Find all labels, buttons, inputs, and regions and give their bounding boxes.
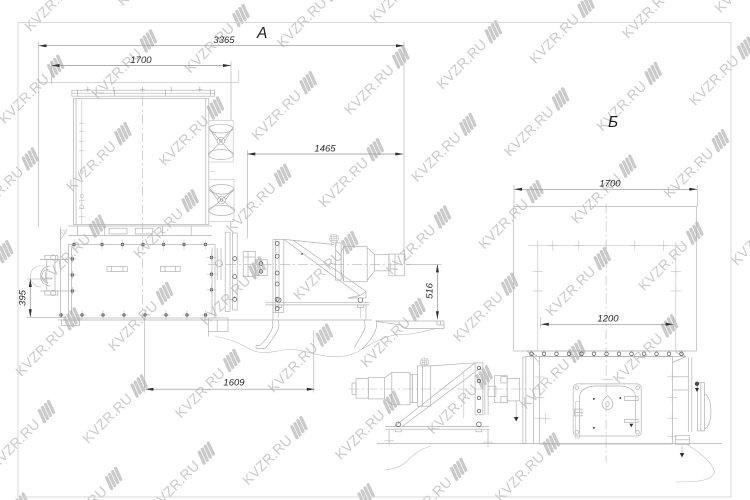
- svg-text:1200: 1200: [597, 313, 619, 324]
- svg-text:А: А: [256, 25, 267, 42]
- svg-text:516: 516: [425, 282, 436, 299]
- svg-text:1700: 1700: [130, 55, 152, 66]
- svg-text:Б: Б: [608, 114, 618, 131]
- svg-text:1465: 1465: [314, 143, 336, 154]
- svg-text:3365: 3365: [213, 35, 235, 46]
- svg-text:395: 395: [18, 289, 29, 306]
- svg-text:1609: 1609: [223, 378, 245, 389]
- svg-text:1700: 1700: [599, 178, 621, 189]
